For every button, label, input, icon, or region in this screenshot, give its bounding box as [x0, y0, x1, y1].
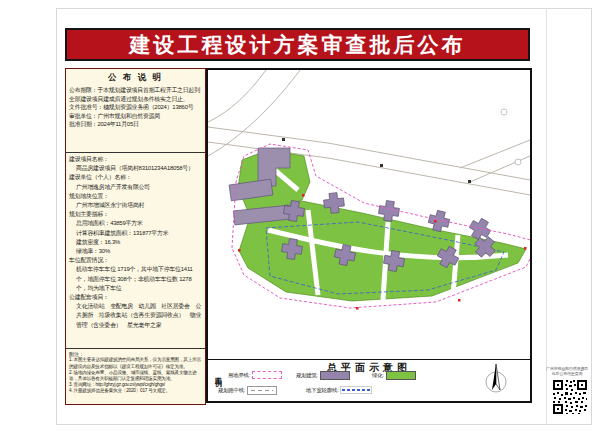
project-name: 商品房建设项目（塔岗村83101234A18058号）: [69, 164, 202, 173]
qr-caption: 广州市规划和自然资源局 批后公布信息查询: [543, 367, 591, 377]
legend-key-label: 图例: [213, 372, 223, 376]
qr-caption-line2: 批后公布信息查询: [543, 372, 591, 377]
underground-swatch: [340, 386, 372, 394]
notice-section: 公 布 说 明 公布期限：于本规划建设项目首期工程开工之日起到全部建设项目建成后…: [66, 69, 205, 152]
notes-section: 附注： 1. 本图主要表达拟建建筑的空间布局关系，仅为示意用图，其上所示的建设内…: [66, 348, 205, 404]
indicators-label: 规划主要指标：: [69, 210, 202, 219]
notice-header: 公 布 说 明: [69, 72, 202, 84]
indicator-floor-area: 计算容积率建筑面积：131877平方米: [69, 229, 202, 238]
project-owner: 广州增逸房地产开发有限公司: [69, 183, 202, 192]
indicator-land-area: 总用地面积：43859平方米: [69, 219, 202, 228]
notice-date: 批准日期：2024年11月05日: [69, 120, 202, 129]
centerline-swatch: [247, 386, 277, 395]
note-item: 4. 注册建筑师信息备案执业〔2020〕017 号文规定。: [69, 388, 202, 394]
legend-item-underground: 地下室轮廓线:: [306, 386, 372, 394]
facilities-detail: 文化活动站 变配电房 幼儿园 社区居委会 公共厕所 垃圾收集站（含再生资源回收点…: [69, 302, 202, 330]
building-swatch: [320, 371, 350, 380]
page-title-banner: 建设工程设计方案审查批后公布: [65, 28, 530, 61]
page-title: 建设工程设计方案审查批后公布: [130, 31, 466, 59]
project-owner-label: 建设单位（个人）名称：: [69, 173, 202, 182]
north-arrow-icon: [485, 361, 507, 399]
boundary-swatch: [252, 371, 282, 379]
qr-code: [551, 378, 589, 416]
legend-label: 地下室轮廓线:: [306, 387, 338, 394]
legend-label: 规划建筑:: [296, 372, 318, 379]
note-item: 2. 场地内绿化布置、小品设施、城市绿线、蓝线、紫线及文物古迹等，具体以各有关职…: [69, 370, 202, 382]
project-name-label: 建设项目名称：: [69, 155, 202, 164]
project-location: 广州市增城区永宁街塔岗村: [69, 201, 202, 210]
site-plan-map: [208, 70, 530, 361]
notice-authority: 审批单位：广州市规划和自然资源局: [69, 112, 202, 121]
legend-label: 规划路中线:: [218, 387, 245, 394]
indicator-green-ratio: 绿地率：30%: [69, 247, 202, 256]
legend-strip: 总平面示意图 图例 用地界线: 规划建筑: 绿化: 规划路中线: 地下室轮廓线:: [208, 359, 530, 401]
legend-item-building: 规划建筑:: [296, 371, 350, 380]
notice-period: 公布期限：于本规划建设项目首期工程开工之日起到全部建设项目建成后通过规划条件核实…: [69, 86, 202, 103]
legend-label: 用地界线:: [228, 372, 250, 379]
legend-label: 绿化:: [372, 372, 384, 379]
facilities-label: 公建配套项目：: [69, 293, 202, 302]
indicator-density: 建筑密度：16.3%: [69, 238, 202, 247]
notice-doc-no: 文件批准号：穗规划资源业务函（2024）13860号: [69, 103, 202, 112]
parking-detail: 机动车停车车位 1719个，其中地下停车位1411个，地面停车位 308个；非机…: [69, 265, 202, 293]
legend-item-green: 绿化:: [372, 371, 416, 380]
legend-item-boundary: 用地界线:: [228, 371, 282, 379]
notice-panel: 公 布 说 明 公布期限：于本规划建设项目首期工程开工之日起到全部建设项目建成后…: [65, 68, 206, 405]
road-markers: [282, 138, 471, 183]
road-label-bubbles: [501, 109, 521, 165]
project-section: 建设项目名称： 商品房建设项目（塔岗村83101234A18058号） 建设单位…: [66, 152, 205, 348]
note-item: 1. 本图主要表达拟建建筑的空间布局关系，仅为示意用图，其上所示的建设内容及技术…: [69, 357, 202, 369]
legend-item-centerline: 规划路中线:: [218, 386, 277, 395]
green-swatch: [386, 371, 416, 380]
project-location-label: 规划地块位置：: [69, 192, 202, 201]
parking-label: 车位配置情况：: [69, 256, 202, 265]
sheet-fold-line: [546, 8, 547, 424]
site-plan-box: 总平面示意图 图例 用地界线: 规划建筑: 绿化: 规划路中线: 地下室轮廓线:: [206, 68, 532, 403]
